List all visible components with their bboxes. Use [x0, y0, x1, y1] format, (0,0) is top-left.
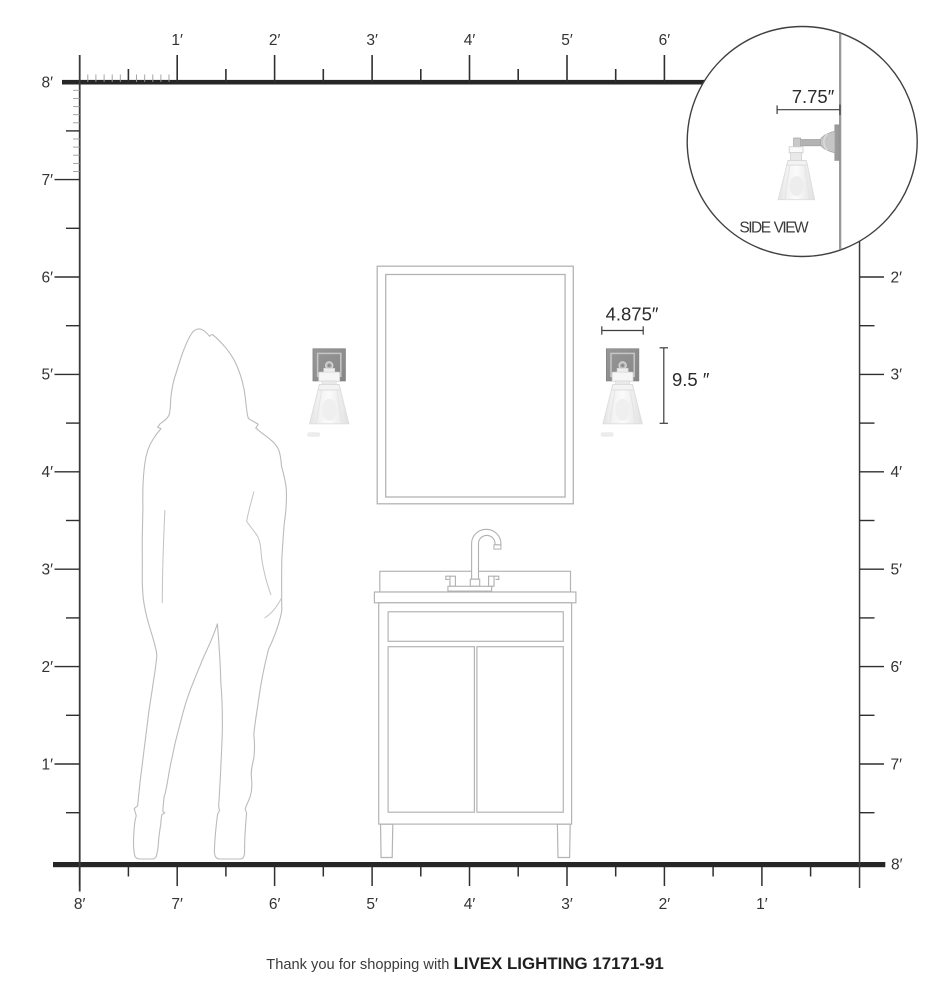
svg-text:3′: 3′ — [561, 896, 573, 913]
svg-text:4′: 4′ — [464, 896, 476, 913]
svg-text:2′: 2′ — [891, 269, 903, 286]
svg-text:3′: 3′ — [366, 32, 378, 49]
svg-text:4.875″: 4.875″ — [606, 304, 659, 325]
svg-text:Thank you for shopping with LI: Thank you for shopping with LIVEX LIGHTI… — [266, 954, 663, 973]
svg-text:5′: 5′ — [41, 367, 53, 384]
svg-text:1′: 1′ — [41, 756, 53, 773]
svg-text:7.75″: 7.75″ — [792, 86, 835, 107]
svg-text:1′: 1′ — [171, 32, 183, 49]
svg-text:7′: 7′ — [41, 172, 53, 189]
svg-text:3′: 3′ — [41, 562, 53, 579]
svg-text:6′: 6′ — [269, 896, 281, 913]
svg-text:4′: 4′ — [41, 464, 53, 481]
svg-text:2′: 2′ — [41, 659, 53, 676]
svg-text:8′: 8′ — [74, 896, 86, 913]
svg-text:8′: 8′ — [41, 75, 53, 92]
svg-text:3′: 3′ — [891, 367, 903, 384]
svg-text:5′: 5′ — [891, 562, 903, 579]
svg-text:7′: 7′ — [891, 756, 903, 773]
svg-text:5′: 5′ — [366, 896, 378, 913]
svg-text:4′: 4′ — [891, 464, 903, 481]
svg-text:7′: 7′ — [171, 896, 183, 913]
svg-text:6′: 6′ — [41, 269, 53, 286]
svg-text:2′: 2′ — [269, 32, 281, 49]
svg-text:6′: 6′ — [891, 659, 903, 676]
svg-text:9.5 ″: 9.5 ″ — [672, 369, 710, 390]
svg-text:6′: 6′ — [659, 32, 671, 49]
svg-text:4′: 4′ — [464, 32, 476, 49]
svg-text:8′: 8′ — [891, 857, 903, 874]
svg-text:SIDE VIEW: SIDE VIEW — [739, 220, 809, 237]
svg-text:1′: 1′ — [756, 896, 768, 913]
svg-text:2′: 2′ — [659, 896, 671, 913]
svg-text:5′: 5′ — [561, 32, 573, 49]
